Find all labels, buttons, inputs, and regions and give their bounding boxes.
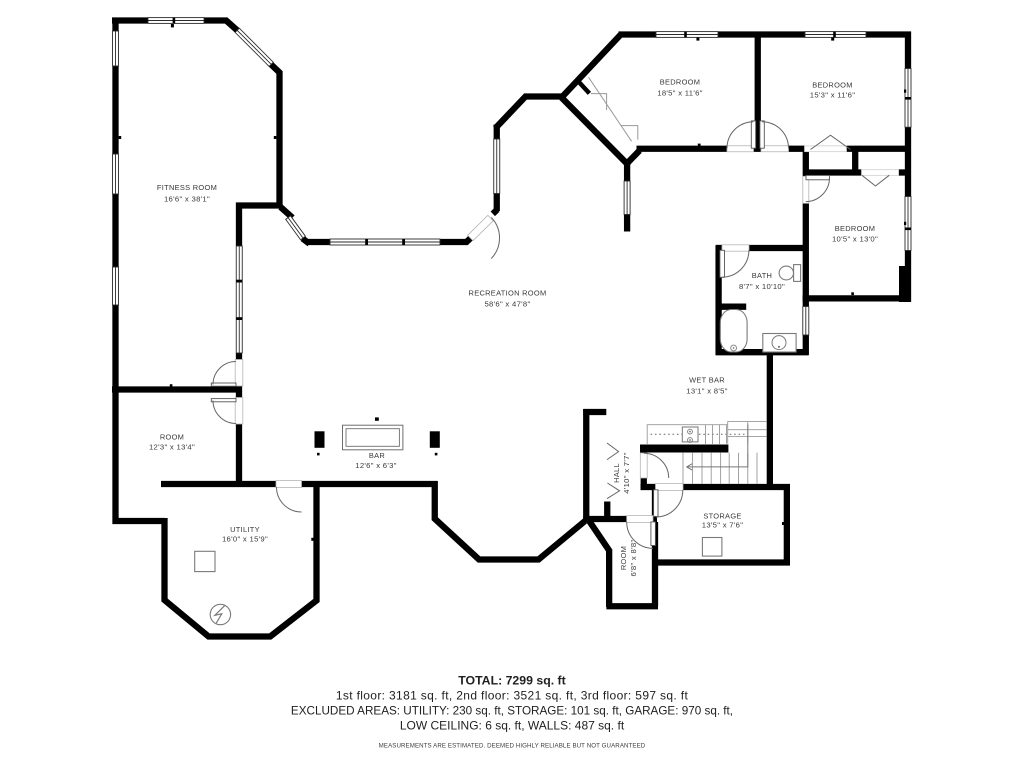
svg-text:10'5" x 13'0": 10'5" x 13'0"	[832, 235, 878, 244]
svg-text:BAR: BAR	[369, 451, 386, 460]
svg-text:13'1" x 8'5": 13'1" x 8'5"	[686, 387, 728, 396]
svg-text:BEDROOM: BEDROOM	[812, 80, 853, 89]
svg-text:12'3" x 13'4": 12'3" x 13'4"	[149, 443, 195, 452]
svg-text:18'5" x 11'6": 18'5" x 11'6"	[657, 89, 703, 98]
svg-text:EXCLUDED AREAS: UTILITY: 230 s: EXCLUDED AREAS: UTILITY: 230 sq. ft, STO…	[291, 705, 733, 718]
svg-text:UTILITY: UTILITY	[230, 525, 260, 534]
svg-text:16'6" x 38'1": 16'6" x 38'1"	[164, 195, 210, 204]
svg-text:ROOM: ROOM	[160, 433, 184, 442]
svg-text:6'8" x 8'8": 6'8" x 8'8"	[629, 540, 638, 577]
svg-text:16'0" x 15'9": 16'0" x 15'9"	[222, 535, 268, 544]
svg-text:12'6" x 6'3": 12'6" x 6'3"	[355, 461, 397, 470]
svg-text:13'5" x 7'6": 13'5" x 7'6"	[702, 521, 744, 530]
svg-text:ROOM: ROOM	[619, 546, 628, 570]
svg-text:1st floor: 3181 sq. ft, 2nd fl: 1st floor: 3181 sq. ft, 2nd floor: 3521 …	[336, 689, 689, 703]
svg-text:STORAGE: STORAGE	[703, 512, 741, 521]
svg-text:15'3" x 11'6": 15'3" x 11'6"	[810, 90, 856, 99]
svg-text:HALL: HALL	[612, 463, 621, 483]
svg-text:TOTAL: 7299 sq. ft: TOTAL: 7299 sq. ft	[458, 674, 566, 688]
svg-text:4'10" x 7'7": 4'10" x 7'7"	[622, 452, 631, 494]
svg-text:BATH: BATH	[752, 271, 772, 280]
svg-text:LOW CEILING: 6 sq. ft, WALLS:: LOW CEILING: 6 sq. ft, WALLS: 487 sq. ft	[400, 719, 625, 733]
svg-text:FITNESS ROOM: FITNESS ROOM	[157, 183, 217, 192]
svg-text:8'7" x 10'10": 8'7" x 10'10"	[739, 282, 785, 291]
svg-text:RECREATION ROOM: RECREATION ROOM	[469, 289, 547, 298]
svg-text:58'6" x 47'8": 58'6" x 47'8"	[484, 300, 530, 309]
svg-text:BEDROOM: BEDROOM	[660, 78, 701, 87]
svg-text:BEDROOM: BEDROOM	[835, 224, 876, 233]
svg-text:MEASUREMENTS ARE ESTIMATED. DE: MEASUREMENTS ARE ESTIMATED. DEEMED HIGHL…	[379, 743, 646, 750]
svg-text:WET BAR: WET BAR	[689, 376, 725, 385]
